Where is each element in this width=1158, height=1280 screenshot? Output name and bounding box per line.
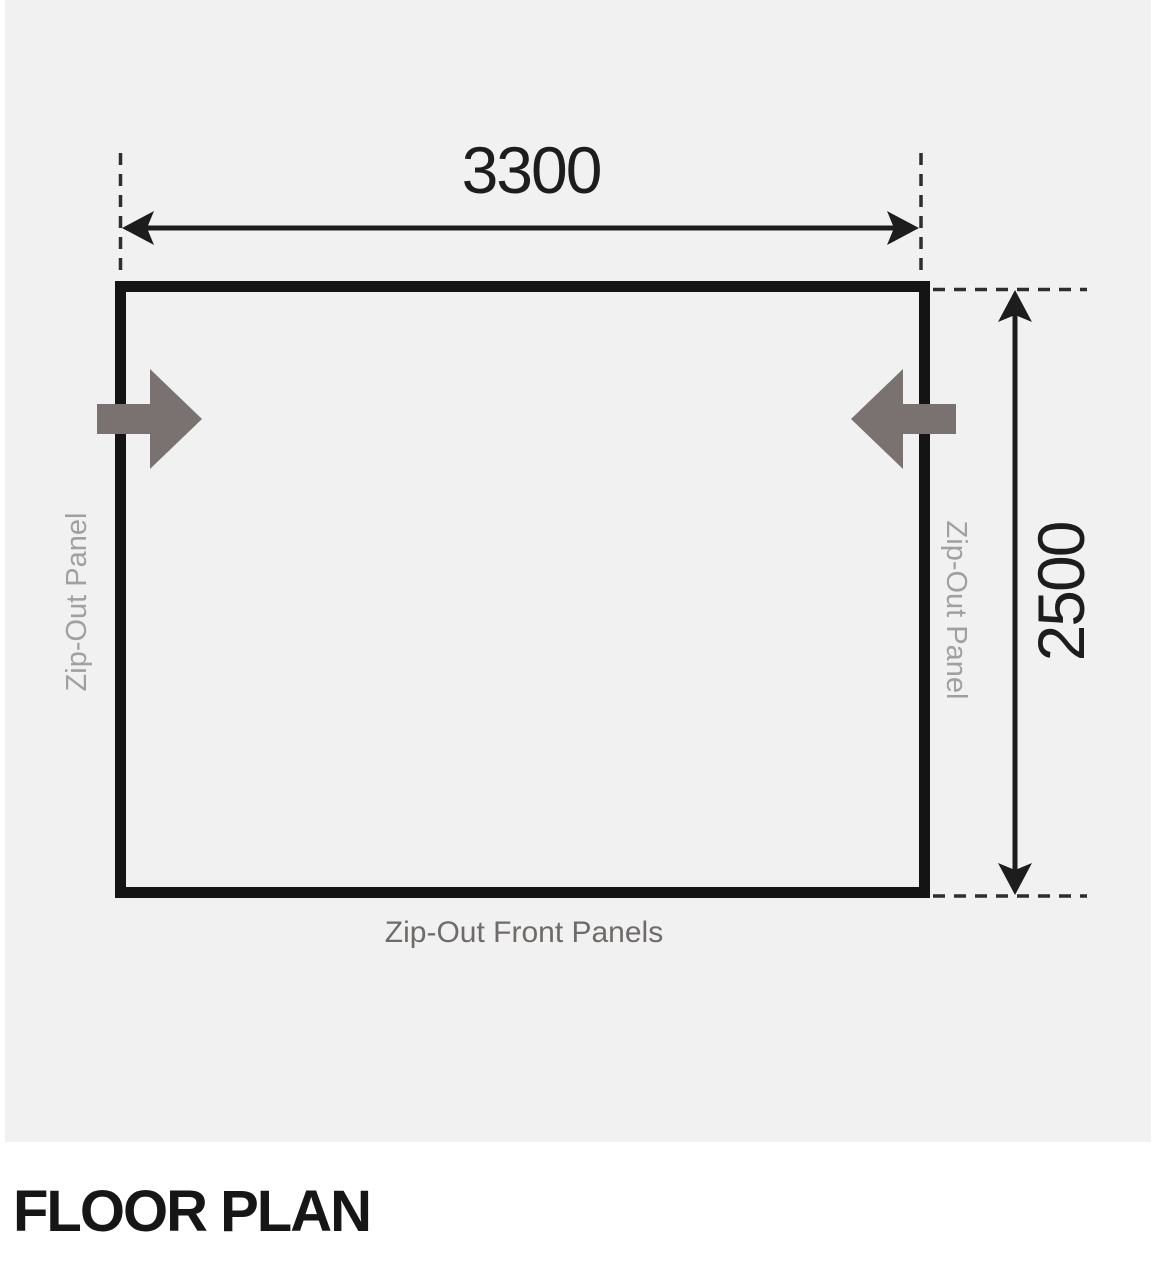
- left-entry-arrow-icon: [97, 369, 202, 469]
- width-dimension-label: 3300: [381, 138, 681, 202]
- room-outline: [121, 287, 925, 893]
- page-title: FLOOR PLAN: [13, 1178, 370, 1245]
- right-zip-out-panel-label: Zip-Out Panel: [941, 460, 971, 760]
- height-dimension-label: 2500: [1029, 482, 1093, 702]
- right-entry-arrow-icon: [851, 369, 956, 469]
- front-panels-label: Zip-Out Front Panels: [274, 916, 774, 950]
- floor-plan-page: 3300 2500 Zip-Out Panel Zip-Out Panel Zi…: [0, 0, 1158, 1280]
- left-zip-out-panel-label: Zip-Out Panel: [62, 452, 92, 752]
